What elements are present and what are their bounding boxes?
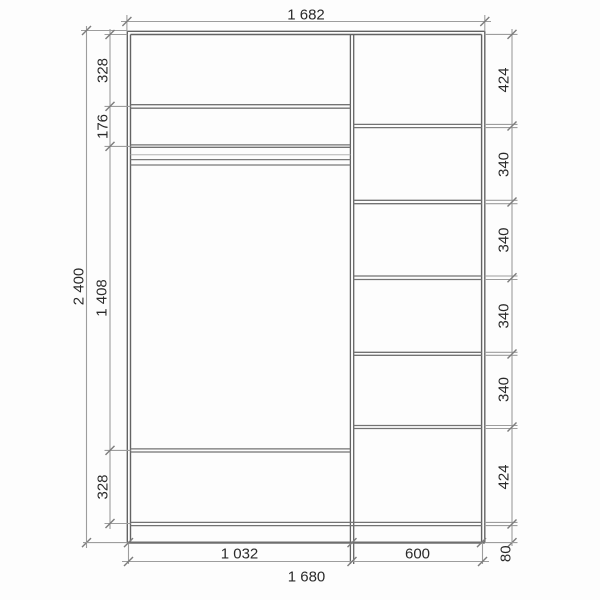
svg-text:1 682: 1 682 [287,7,325,24]
svg-text:80: 80 [498,545,515,562]
svg-text:1 408: 1 408 [93,279,110,317]
svg-text:328: 328 [94,58,111,83]
svg-text:1 680: 1 680 [288,569,326,586]
svg-text:2 400: 2 400 [71,268,88,306]
svg-text:340: 340 [496,152,513,177]
svg-text:1 032: 1 032 [221,546,259,563]
svg-text:340: 340 [496,377,513,402]
svg-text:328: 328 [94,474,111,499]
svg-text:176: 176 [94,114,111,139]
svg-text:424: 424 [496,67,513,92]
svg-text:600: 600 [405,546,430,563]
svg-text:424: 424 [496,464,513,489]
svg-text:340: 340 [496,303,513,328]
svg-text:340: 340 [496,227,513,252]
